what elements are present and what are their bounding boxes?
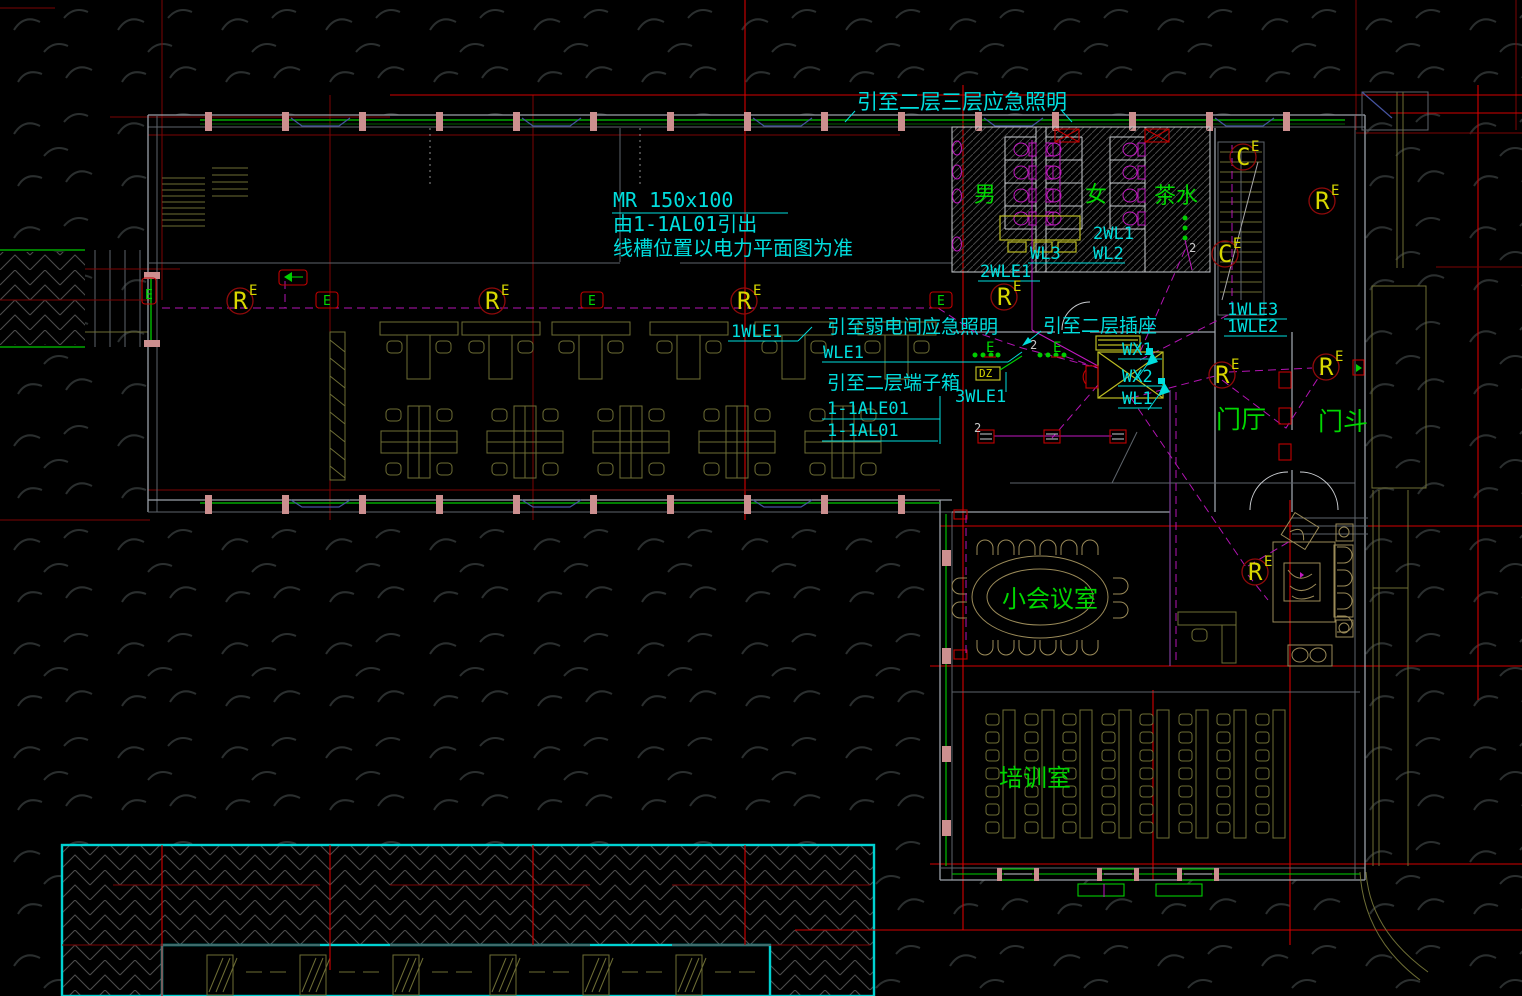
room-label-meeting: 小会议室 — [1002, 585, 1098, 613]
dz-label: DZ — [979, 367, 993, 380]
circuit-label: 1WLE1 — [731, 322, 782, 342]
room-label-tea: 茶水 — [1154, 184, 1198, 209]
panel-label: 1-1AL01 — [827, 421, 899, 441]
top-emergency-note: 引至二层三层应急照明 — [857, 90, 1067, 114]
tray-size-note: MR 150x100 — [613, 188, 733, 212]
e-label: E — [1053, 340, 1061, 356]
exit-e-label: E — [145, 288, 153, 303]
circuit-label: WL3 — [1030, 244, 1061, 264]
room-label-lobby: 门厅 — [1216, 405, 1266, 434]
count-label: 2 — [1189, 241, 1196, 255]
svg-text:R: R — [1215, 361, 1230, 389]
svg-text:R: R — [1315, 187, 1330, 215]
svg-text:R: R — [485, 287, 500, 315]
socket-note: 引至二层插座 — [1043, 315, 1157, 337]
floor-plan-drawing: R E R E R E R E R E R E R — [0, 0, 1522, 996]
circuit-label: 3WLE1 — [955, 387, 1006, 407]
svg-text:C: C — [1236, 143, 1250, 171]
paved-plaza — [62, 845, 874, 996]
tray-position-note: 线槽位置以电力平面图为准 — [613, 236, 853, 260]
exit-e-label: E — [588, 294, 596, 309]
svg-text:E: E — [1335, 349, 1343, 365]
circuit-label: WLE1 — [823, 343, 864, 363]
svg-text:E: E — [1251, 139, 1259, 155]
svg-text:R: R — [997, 283, 1012, 311]
panel-label: 1-1ALE01 — [827, 399, 909, 419]
room-label-training: 培训室 — [999, 764, 1071, 792]
svg-text:R: R — [1248, 558, 1263, 586]
room-label-vestibule: 门斗 — [1318, 407, 1368, 436]
count-label: 2 — [1030, 338, 1037, 352]
count-label: 2 — [974, 421, 981, 435]
svg-text:E: E — [501, 283, 509, 299]
circuit-label: WL2 — [1093, 244, 1124, 264]
cad-viewport[interactable]: R E R E R E R E R E R E R — [0, 0, 1522, 996]
circuit-label: WL1 — [1122, 389, 1153, 409]
tray-from-note: 由1-1AL01引出 — [613, 212, 757, 236]
circuit-label: WX1 — [1122, 340, 1153, 360]
circuit-label: 2WLE1 — [980, 262, 1031, 282]
room-label-female-wc: 女 — [1085, 183, 1107, 208]
svg-text:E: E — [1231, 357, 1239, 373]
circuit-label: WX2 — [1122, 367, 1153, 387]
marker-superscript: E — [249, 283, 257, 299]
svg-text:R: R — [737, 287, 752, 315]
exit-e-label: E — [937, 294, 945, 309]
svg-text:E: E — [753, 283, 761, 299]
svg-text:E: E — [1233, 236, 1241, 252]
room-label-male-wc: 男 — [974, 183, 996, 208]
circuit-label: 2WL1 — [1093, 224, 1134, 244]
e-label: E — [986, 340, 994, 356]
marker-letter: R — [233, 287, 248, 315]
svg-text:R: R — [1319, 353, 1334, 381]
svg-text:E: E — [1264, 554, 1272, 570]
exit-e-label: E — [323, 294, 331, 309]
svg-text:E: E — [1331, 183, 1339, 199]
weak-room-note: 引至弱电间应急照明 — [827, 316, 998, 338]
svg-text:C: C — [1218, 240, 1232, 268]
circuit-label: 1WLE2 — [1227, 317, 1278, 337]
terminal-box-note: 引至二层端子箱 — [827, 372, 960, 394]
